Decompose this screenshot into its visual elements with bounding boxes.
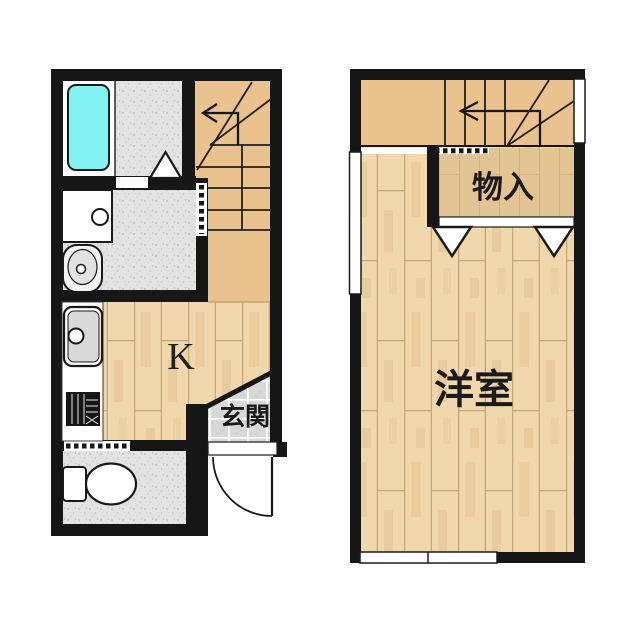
entrance-door-swing-arc <box>213 457 272 516</box>
washbasin-drain <box>77 265 86 274</box>
stair-threshold-2f <box>361 148 425 155</box>
closet-label: 物入 <box>472 170 534 205</box>
stove-icon <box>66 392 100 426</box>
kitchen-label: K <box>167 336 195 378</box>
window-stair-icon <box>574 79 585 143</box>
window-bottom-icon <box>360 552 497 563</box>
window-left-icon <box>350 152 362 294</box>
toilet-icon <box>63 464 136 505</box>
entrance-label: 玄関 <box>220 402 270 431</box>
closet-track <box>439 217 574 227</box>
toilet-threshold <box>64 441 130 451</box>
kitchen-faucet-icon <box>69 329 84 344</box>
washer-drain-icon <box>92 209 108 225</box>
entrance-threshold <box>208 442 277 455</box>
bathtub-icon <box>68 85 109 170</box>
bathroom-threshold <box>116 177 148 188</box>
closet-wall <box>427 147 439 227</box>
floorplan-svg: K 玄関 <box>0 0 639 640</box>
floor-1: K 玄関 <box>51 69 287 536</box>
floor-2: 物入 洋室 <box>350 69 586 563</box>
floorplan-canvas: K 玄関 <box>0 0 639 640</box>
western-room-label: 洋室 <box>434 368 514 412</box>
